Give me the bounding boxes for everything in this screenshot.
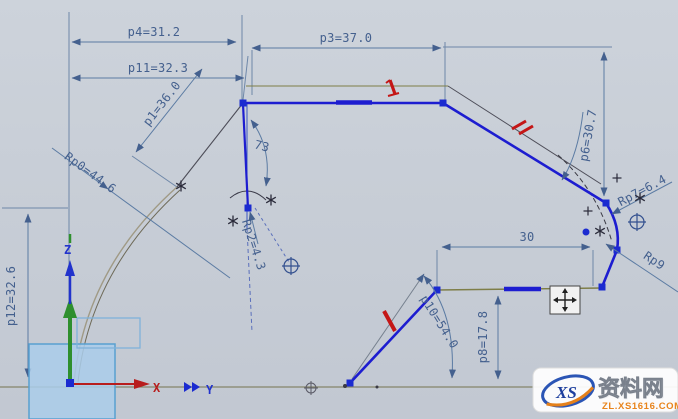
dim-p12-label[interactable]: p12=32.6 [4, 266, 18, 326]
dim-30-label[interactable]: 30 [519, 230, 534, 244]
dim-p8-label[interactable]: p8=17.8 [476, 311, 490, 364]
watermark-logo-text: XS [555, 383, 577, 402]
z-axis-label: Z [64, 243, 71, 257]
dim-p4-label[interactable]: p4=31.2 [128, 25, 181, 39]
y-axis-label: Y [206, 383, 214, 397]
dim-p11-label[interactable]: p11=32.3 [128, 61, 188, 75]
dim-p3-label[interactable]: p3=37.0 [320, 31, 373, 45]
origin-point[interactable] [66, 379, 74, 387]
sketch-canvas[interactable]: p4=31.2 p11=32.3 p3=37.0 p1=36.0 Rp0=44.… [0, 0, 678, 419]
watermark: XS 资料网 资料网 ZL.XS1616.COM [533, 368, 678, 412]
cad-sketch-window: p4=31.2 p11=32.3 p3=37.0 p1=36.0 Rp0=44.… [0, 0, 678, 419]
watermark-domain: ZL.XS1616.COM [602, 401, 678, 412]
move-cursor-icon[interactable] [550, 286, 580, 314]
watermark-brand: 资料网 [598, 377, 664, 402]
x-axis-label: X [153, 381, 161, 395]
